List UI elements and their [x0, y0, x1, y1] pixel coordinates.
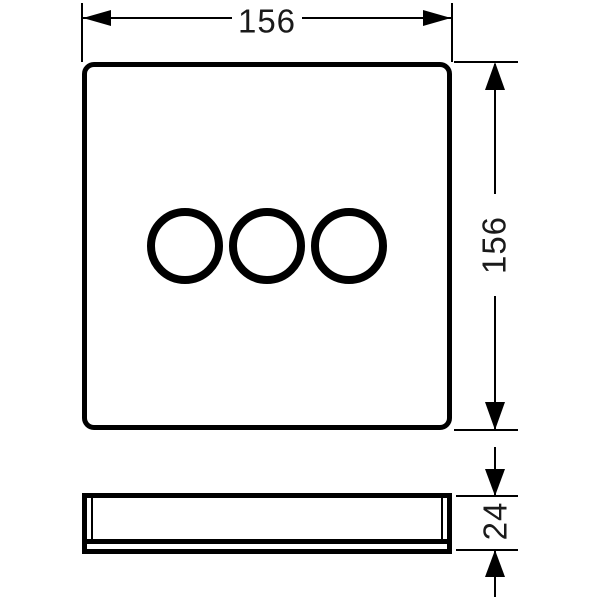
width-dimension-line-right	[302, 17, 451, 19]
depth-dimension-line-lower	[494, 551, 496, 597]
depth-dimension-label: 24	[479, 502, 512, 541]
side-view-bottom-edge	[82, 549, 452, 554]
width-extension-line-right	[451, 3, 453, 62]
technical-drawing: 156 156 24	[0, 0, 600, 600]
button-circle-right	[311, 208, 387, 284]
side-view-rim-step-line	[85, 539, 449, 544]
width-dimension-label: 156	[238, 5, 296, 38]
button-circle-left	[147, 208, 223, 284]
button-circle-center	[229, 208, 305, 284]
height-dimension-line-top	[494, 64, 496, 194]
width-dimension-line-left	[83, 17, 232, 19]
height-extension-line-top	[454, 61, 518, 63]
height-dimension-line-bottom	[494, 296, 496, 429]
height-extension-line-bottom	[454, 429, 518, 431]
side-view-inner-left-line	[91, 498, 93, 539]
side-view-top-edge	[82, 493, 452, 498]
height-dimension-label: 156	[478, 216, 511, 274]
depth-dimension-line-upper	[494, 447, 496, 495]
side-view-inner-right-line	[441, 498, 443, 539]
width-extension-line-left	[81, 3, 83, 62]
depth-extension-line-bottom	[456, 549, 518, 551]
depth-extension-line-top	[456, 495, 518, 497]
